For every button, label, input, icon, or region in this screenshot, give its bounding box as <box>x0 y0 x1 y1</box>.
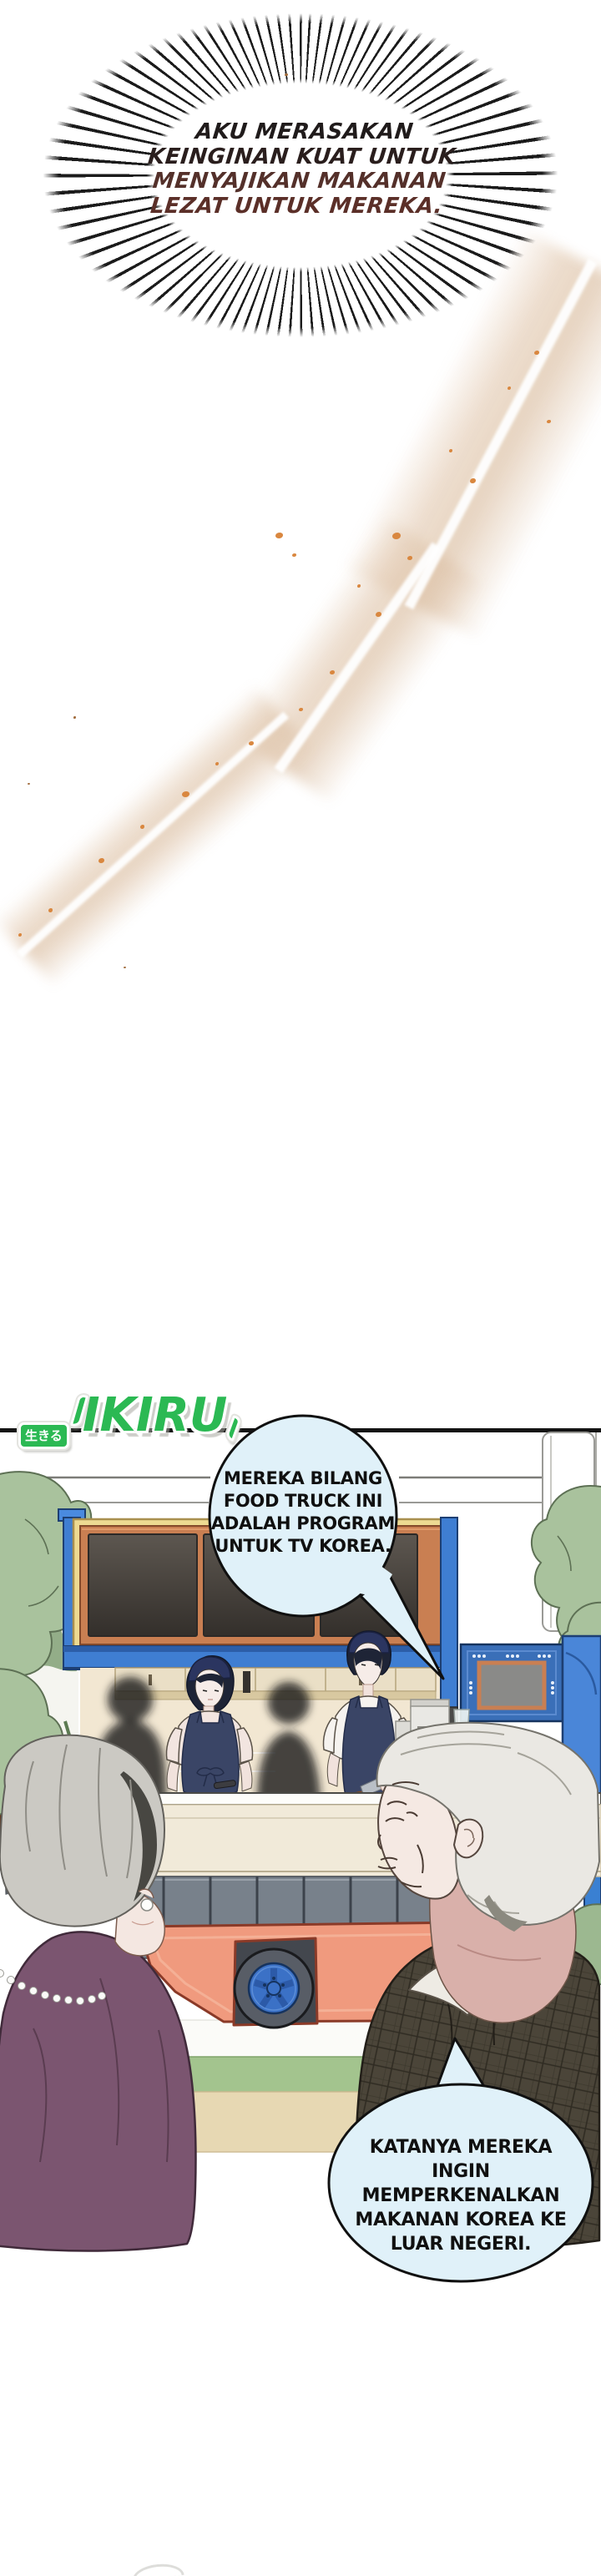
paint-stain-gap <box>17 711 289 957</box>
paint-speck <box>73 716 76 719</box>
burst-line: KEINGINAN KUAT UNTUK <box>92 145 512 170</box>
speech-line: ADALAH PROGRAM <box>205 1513 402 1535</box>
paint-speck <box>124 967 126 968</box>
paint-speck <box>275 533 283 538</box>
pearl-earring <box>141 1899 153 1911</box>
speech-line: MEMPERKENALKAN <box>338 2184 583 2208</box>
ikiru-logo-name: IKIRU <box>83 1392 228 1439</box>
comic-page: AKU MERASAKAN KEINGINAN KUAT UNTUK MENYA… <box>0 0 601 2576</box>
speech-bubble-2-text: KATANYA MEREKA INGIN MEMPERKENALKAN MAKA… <box>338 2135 583 2256</box>
burst-line: LEZAT UNTUK MEREKA. <box>87 194 507 220</box>
speech-line: MEREKA BILANG <box>205 1467 402 1490</box>
speech-line: UNTUK TV KOREA. <box>205 1535 402 1558</box>
paint-speck <box>28 783 30 785</box>
ikiru-logo-badge: 生きる <box>18 1422 69 1449</box>
speech-line: LUAR NEGERI. <box>338 2232 583 2256</box>
paint-speck <box>292 553 296 557</box>
truck-rear-sign <box>461 1644 563 1721</box>
ikiru-logo: 生きる IKIRU <box>18 1387 238 1449</box>
speech-line: MAKANAN KOREA KE <box>338 2208 583 2232</box>
speech-bubble-1-text: MEREKA BILANG FOOD TRUCK INI ADALAH PROG… <box>205 1467 402 1558</box>
burst-speech-bubble: AKU MERASAKAN KEINGINAN KUAT UNTUK MENYA… <box>87 120 514 219</box>
burst-line: MENYAJIKAN MAKANAN <box>89 169 509 194</box>
bottom-wisp <box>131 2562 184 2576</box>
speech-line: KATANYA MEREKA INGIN <box>338 2135 583 2184</box>
speech-line: FOOD TRUCK INI <box>205 1490 402 1513</box>
wheel <box>235 1949 313 2028</box>
burst-line: AKU MERASAKAN <box>94 120 514 145</box>
